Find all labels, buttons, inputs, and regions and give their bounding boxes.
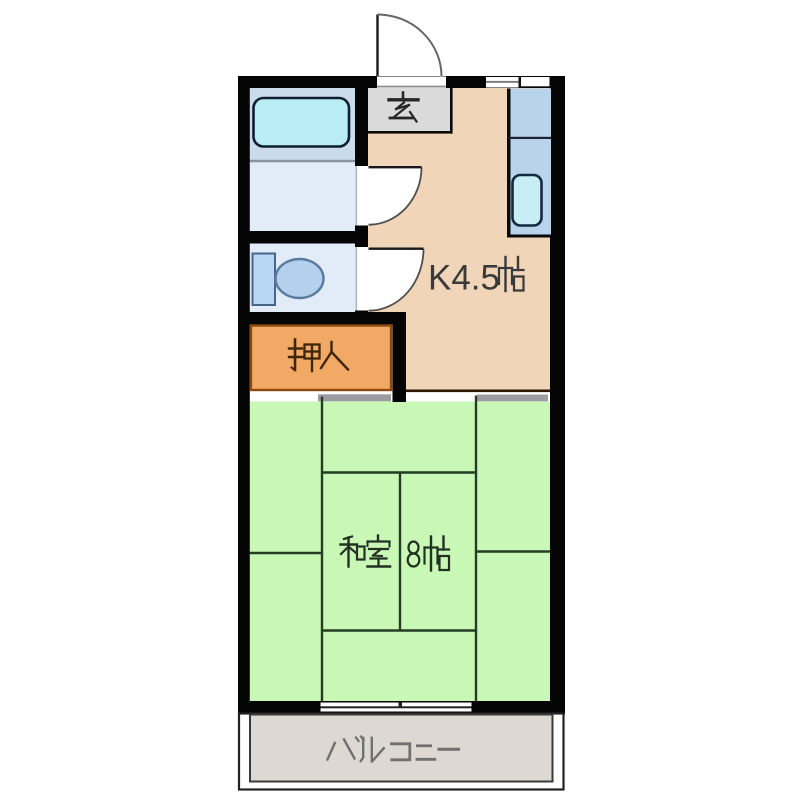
svg-text:K4.5: K4.5 [428, 259, 500, 298]
